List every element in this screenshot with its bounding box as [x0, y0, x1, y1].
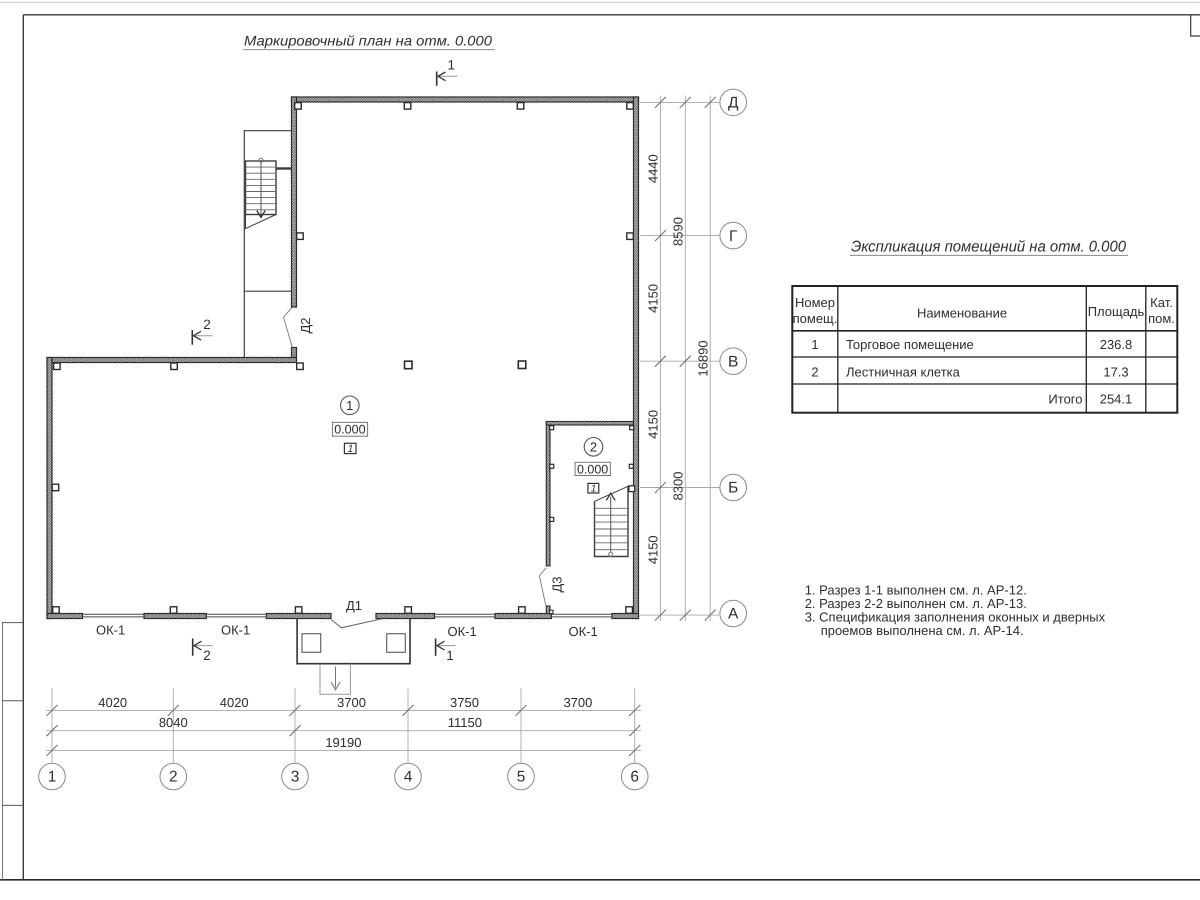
svg-text:ОК-1: ОК-1 [96, 623, 125, 638]
svg-text:Наименование: Наименование [917, 306, 1007, 321]
svg-text:2: 2 [811, 364, 818, 379]
svg-text:Д3: Д3 [549, 576, 564, 592]
svg-text:Кат.: Кат. [1150, 295, 1173, 310]
svg-text:1: 1 [591, 484, 597, 495]
svg-text:4020: 4020 [98, 695, 127, 710]
svg-text:ОК-1: ОК-1 [221, 623, 250, 638]
svg-text:17.3: 17.3 [1103, 364, 1128, 379]
svg-text:помещ.: помещ. [793, 311, 838, 326]
svg-text:2: 2 [590, 440, 597, 455]
svg-text:3750: 3750 [450, 695, 479, 710]
svg-text:11150: 11150 [448, 715, 482, 730]
svg-text:4: 4 [404, 769, 413, 786]
svg-text:8040: 8040 [159, 715, 188, 730]
svg-text:3700: 3700 [337, 695, 366, 710]
svg-text:Д: Д [728, 95, 739, 112]
svg-text:2: 2 [203, 317, 211, 332]
svg-text:Д2: Д2 [298, 317, 313, 333]
svg-text:Б: Б [728, 480, 738, 497]
svg-text:Торговое помещение: Торговое помещение [846, 337, 974, 352]
svg-text:1: 1 [346, 398, 353, 413]
svg-text:1: 1 [48, 769, 57, 786]
svg-text:4150: 4150 [646, 284, 661, 313]
svg-text:3: 3 [291, 769, 300, 786]
svg-text:4150: 4150 [646, 410, 661, 439]
svg-text:ОК-1: ОК-1 [569, 624, 598, 639]
svg-text:В: В [728, 353, 738, 370]
svg-text:Экспликация помещений на отм.: Экспликация помещений на отм. 0.000 [851, 238, 1126, 255]
svg-text:0.000: 0.000 [334, 423, 365, 437]
svg-text:2: 2 [203, 648, 211, 663]
svg-text:8300: 8300 [671, 472, 686, 501]
svg-text:8590: 8590 [671, 217, 686, 246]
svg-text:Д1: Д1 [346, 598, 362, 613]
svg-text:236.8: 236.8 [1100, 337, 1133, 352]
svg-text:Номер: Номер [795, 295, 835, 310]
svg-text:6: 6 [630, 769, 639, 786]
svg-text:16890: 16890 [696, 340, 711, 376]
svg-text:пом.: пом. [1148, 311, 1175, 326]
svg-text:Площадь: Площадь [1088, 304, 1145, 319]
svg-text:Лестничная клетка: Лестничная клетка [846, 364, 961, 379]
svg-text:Г: Г [729, 228, 738, 245]
svg-text:А: А [728, 606, 739, 623]
svg-text:3700: 3700 [563, 695, 592, 710]
svg-text:1: 1 [347, 443, 353, 455]
svg-text:4150: 4150 [646, 535, 661, 564]
svg-text:1: 1 [448, 58, 456, 73]
svg-text:0.000: 0.000 [577, 462, 608, 476]
svg-text:2: 2 [169, 769, 178, 786]
svg-text:5: 5 [517, 769, 526, 786]
svg-text:19190: 19190 [325, 735, 361, 750]
svg-text:Итого: Итого [1048, 392, 1082, 407]
svg-text:4440: 4440 [646, 154, 661, 183]
svg-text:ОК-1: ОК-1 [448, 624, 477, 639]
svg-text:4020: 4020 [220, 695, 249, 710]
svg-text:проемов выполнена см. л. АР-14: проемов выполнена см. л. АР-14. [821, 623, 1024, 638]
svg-text:Маркировочный план на отм. 0.0: Маркировочный план на отм. 0.000 [244, 33, 492, 49]
svg-text:1: 1 [811, 337, 818, 352]
svg-text:1: 1 [446, 648, 454, 663]
svg-text:254.1: 254.1 [1100, 392, 1133, 407]
